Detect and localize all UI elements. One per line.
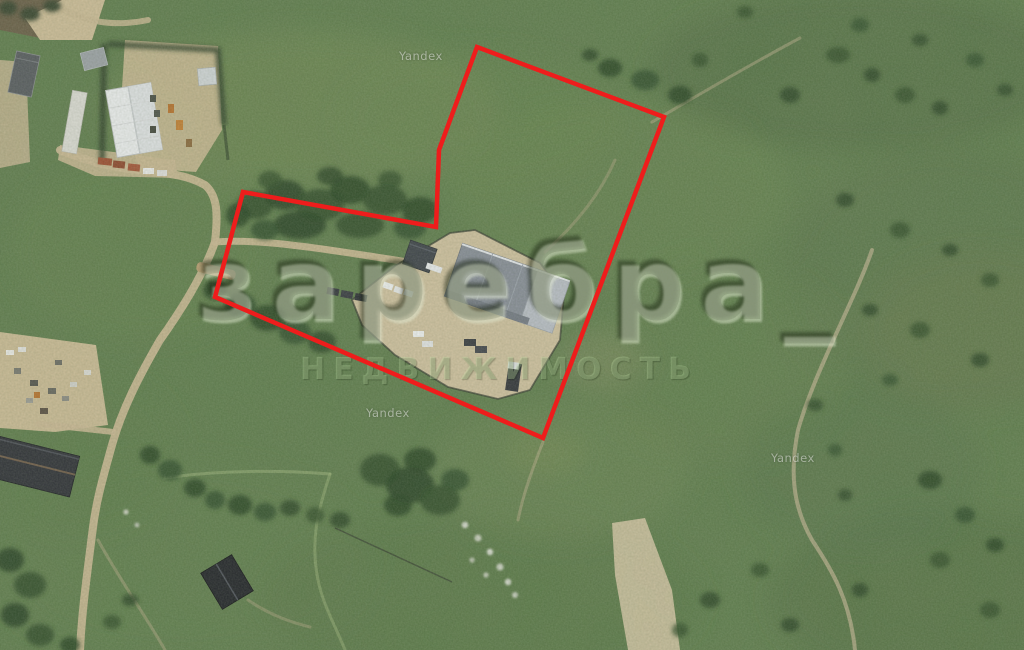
map-viewport: заребра_ НЕДВИЖИМОСТЬ Yandex Yandex Yand… [0, 0, 1024, 650]
property-boundary [215, 47, 664, 438]
boundary-overlay [0, 0, 1024, 650]
